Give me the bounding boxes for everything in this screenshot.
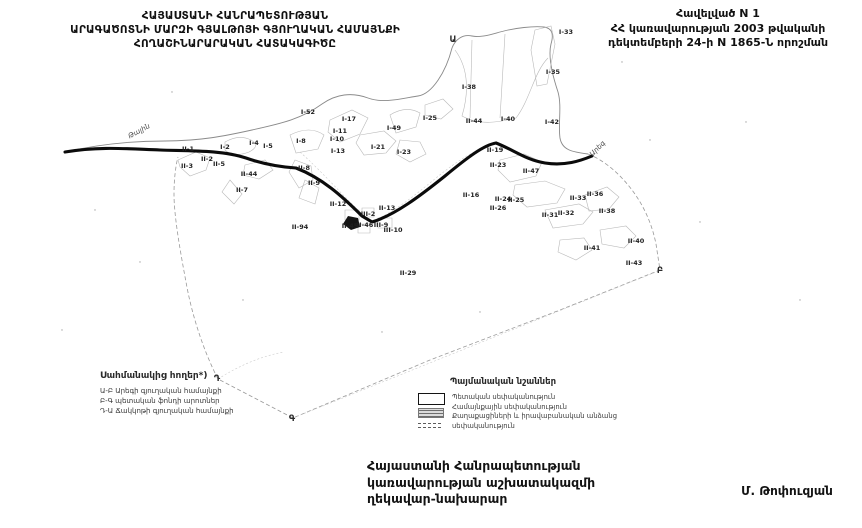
parcel-label: I-35 [546,68,561,76]
annex-line: Հավելված N 1 [580,7,856,22]
parcel-label: I-11 [333,127,348,135]
legend-swatches [418,393,452,431]
parcel-label: I-23 [397,148,411,156]
parcel-label: II-3 [181,162,193,170]
parcel-label: II-44 [466,117,483,125]
parcel-label: II-7 [236,186,248,194]
signatory-name: Մ. Թոփուզյան [722,484,852,498]
parcel-label: II-31 [542,211,559,219]
footer-line: Հայաստանի Հանրապետության [367,458,657,475]
map-labels: II-1I-2II-2II-5II-3I-4I-5II-44II-7I-8II-… [127,28,663,424]
parcel-label: II-26 [490,204,507,212]
parcel-label: II-46 [357,221,374,229]
parcel-label: I-5 [263,142,273,150]
parcel-label: I-52 [301,108,315,116]
boundary-corner-letter: Բ [657,266,663,276]
adjacent-lands-legend: Սահմանակից հողեր*) Ա-Բ Արեգի գյուղական հ… [100,371,310,416]
parcel-label: II-5 [213,160,226,168]
parcel-label: I-13 [331,147,345,155]
parcel-label: I-2 [220,143,230,151]
parcel-label: II-38 [599,207,616,215]
signatory-title: Հայաստանի Հանրապետության կառավարության ա… [367,458,657,508]
title-line: ԱՐԱԳԱԾՈՏՆԻ ՄԱՐԶԻ ԳՅԱԼԹՈՅԻ ԳՅՈՒՂԱԿԱՆ ՀԱՄԱ… [35,23,435,37]
annex-reference: Հավելված N 1 ՀՀ կառավարության 2003 թվակա… [580,7,856,51]
boundary-corner-letter: Ա [450,35,457,45]
legend-item: Պետական սեփականություն [452,393,622,403]
adjacent-land-item: Ա-Բ Արեգի գյուղական համայնքի [100,386,310,396]
parcel-label: I-40 [501,115,516,123]
parcel-label: II-2 [201,155,213,163]
land-use-map: II-1I-2II-2II-5II-3I-4I-5II-44II-7I-8II-… [0,0,862,528]
parcel-label: I-21 [371,143,386,151]
road-direction-label: Արեգ [588,139,607,158]
parcel-label: II-23 [490,161,507,169]
parcel-label: II-43 [626,259,643,267]
state-ownership-swatch [418,393,445,405]
parcel-label: II-13 [379,204,396,212]
parcel-label: II-94 [292,223,309,231]
road-direction-label: Թալին [127,122,152,140]
parcel-label: I-25 [423,114,438,122]
document-title: ՀԱՅԱՍՏԱՆԻ ՀԱՆՐԱՊԵՏՈՒԹՅԱՆ ԱՐԱԳԱԾՈՏՆԻ ՄԱՐԶ… [35,9,435,51]
parcel-label: II-25 [508,196,525,204]
private-ownership-swatch [418,423,441,428]
legend-item: Համայնքային սեփականություն [452,403,622,413]
parcel-label: II-36 [587,190,604,198]
parcel-label: I-8 [296,137,306,145]
parcel-label: II-44 [241,170,258,178]
main-road [65,143,592,222]
parcel-label: III-10 [384,226,403,234]
annex-line: ՀՀ կառավարության 2003 թվականի [580,22,856,37]
parcel-label: II-41 [584,244,601,252]
adjacent-land-item: Բ-Գ պետական ֆոնդի արոտներ [100,396,310,406]
parcel-label: II-40 [628,237,645,245]
parcel-label: II-29 [400,269,417,277]
parcel-label: II-1 [182,145,195,153]
parcel-label: II-16 [463,191,480,199]
parcel-label: III-2 [361,210,375,218]
parcel-label: I-17 [342,115,356,123]
adjacent-lands-title: Սահմանակից հողեր*) [100,371,310,381]
title-line: ՀԱՅԱՍՏԱՆԻ ՀԱՆՐԱՊԵՏՈՒԹՅԱՆ [35,9,435,23]
parcel-label: II-12 [330,200,347,208]
title-line: ՀՈՂԱՇԻՆԱՐԱՐԱԿԱՆ ՀԱՏԱԿԱԳԻԾԸ [35,37,435,51]
parcel-label: I-4 [249,139,259,147]
parcel-label: II-8 [298,164,311,172]
legend-item: Քաղաքացիների և իրավաբանական անձանց սեփակ… [452,412,622,431]
parcel-label: II-47 [523,167,540,175]
parcel-label: I-49 [387,124,402,132]
conventional-signs-legend: Պայմանական նշաններ Պետական սեփականությու… [418,377,633,431]
conventional-signs-title: Պայմանական նշաններ [418,377,588,387]
footer-line: ղեկավար-նախարար [367,491,657,508]
parcel-label: II-33 [570,194,587,202]
parcel-label: I-38 [462,83,477,91]
annex-line: դեկտեմբերի 24-ի N 1865-Ն որոշման [580,36,856,51]
footer-line: կառավարության աշխատակազմի [367,475,657,492]
parcel-label: II-19 [487,146,504,154]
adjacent-land-item: Դ-Ա Ճակկոթի գյուղական համայնքի [100,406,310,416]
parcel-label: II-32 [558,209,575,217]
parcel-label: I-10 [330,135,345,143]
community-ownership-swatch [418,408,444,418]
parcel-label: I-42 [545,118,559,126]
parcel-label: I-33 [559,28,573,36]
parcel-label: II-9 [308,179,321,187]
